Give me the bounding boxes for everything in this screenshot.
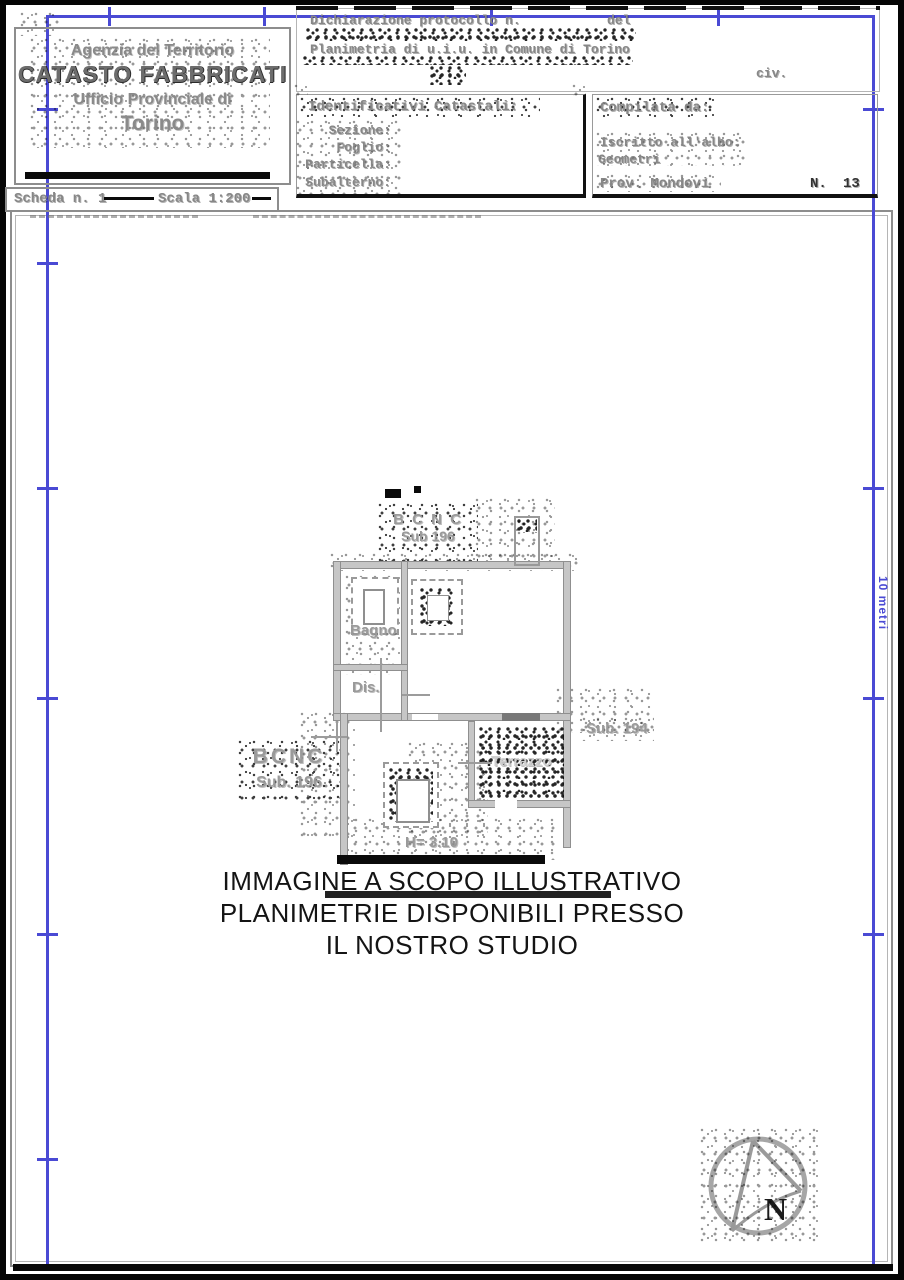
registry-title: CATASTO FABBRICATI [14, 61, 291, 88]
protocol-label: Dichiarazione protocollo n. [310, 13, 521, 28]
bottom-border-bar [13, 1264, 893, 1271]
watermark-line3: IL NOSTRO STUDIO [0, 930, 904, 961]
ruler-tick [863, 697, 884, 700]
compass-north-label: N [764, 1191, 787, 1227]
section-cut-line [337, 855, 545, 864]
albo-number-value: 13 [843, 176, 860, 192]
office-city: Torino [14, 112, 291, 136]
wall [333, 561, 341, 721]
leader-line [380, 658, 382, 732]
label-bcnc-top-line1: B C N C [393, 511, 463, 528]
declaration-box-top-border [296, 6, 880, 10]
label-bcnc-left-line2: Sub. 196 [256, 774, 322, 791]
smudge-line [253, 215, 481, 218]
albo-number-label: N. [810, 176, 827, 192]
noise-mark [414, 486, 421, 493]
prov-value: Prov. Mondovi [600, 176, 709, 192]
label-sub-194: Sub. 194 [586, 720, 648, 737]
office-line: Ufficio Provinciale di [14, 91, 291, 109]
watermark-line1: IMMAGINE A SCOPO ILLUSTRATIVO [0, 866, 904, 897]
header-divider-bar [25, 172, 270, 179]
wall-partition [401, 561, 408, 721]
label-bcnc-top-line2: Sub 196 [401, 528, 455, 544]
field-particella: Particella: [296, 157, 391, 172]
field-sezione: Sezione: [296, 123, 391, 138]
albo-label: Iscritto all'albo: [600, 135, 740, 150]
scala-value: Scala 1:200 [158, 191, 250, 207]
label-bcnc-left-line1: BCNC [253, 745, 326, 768]
ruler-tick [37, 1158, 58, 1161]
watermark-line2: PLANIMETRIE DISPONIBILI PRESSO [0, 898, 904, 929]
scala-rule [252, 197, 271, 200]
label-terrazzo: Terrazzo [491, 753, 552, 770]
protocol-del-label: del [607, 13, 630, 28]
civ-label: civ. [756, 66, 787, 81]
drawing-area-frame-inner [15, 215, 888, 1262]
ruler-scale-label: 10 metri [876, 576, 890, 630]
wall-partition [468, 721, 475, 808]
field-foglio: Foglio: [296, 140, 391, 155]
ruler-tick [37, 262, 58, 265]
wall-opening [495, 800, 517, 808]
north-compass-svg: N [702, 1130, 814, 1242]
fixture-inner [363, 589, 385, 625]
identificativi-title: Identificativi Catastali: [308, 99, 518, 115]
ruler-tick [37, 697, 58, 700]
wall-partition [333, 664, 408, 671]
ruler-line-right [872, 15, 875, 1264]
label-bcnc-top: B C N C Sub 196 [383, 511, 473, 545]
albo-value: Geometri [598, 152, 660, 167]
label-height: H= 3.10 [405, 834, 458, 851]
scheda-number: Scheda n. 1 [14, 191, 106, 207]
smudge-line [30, 215, 198, 218]
wall [468, 800, 571, 808]
planimetria-line: Planimetria di u.i.u. in Comune di Torin… [310, 42, 630, 57]
ruler-tick [263, 7, 266, 26]
field-subalterno: Subalterno: [296, 175, 391, 190]
agency-name: Agenzia del Territorio [14, 42, 291, 60]
leader-line [311, 736, 347, 738]
noise-mark [385, 489, 401, 498]
leader-line [458, 762, 492, 764]
ruler-tick [37, 487, 58, 490]
label-dis: Dis. [352, 679, 380, 696]
leader-line [402, 694, 430, 696]
wall-opening [412, 714, 438, 720]
compilata-title: Compilata da: [600, 100, 709, 116]
label-bcnc-left: BCNC Sub. 196 [240, 745, 338, 793]
door-threshold [502, 713, 540, 721]
ruler-tick [108, 7, 111, 26]
scheda-rule [104, 197, 154, 200]
scanned-cadastral-planimetria: { "header_left": { "agency": "Agenzia de… [0, 0, 904, 1280]
duct [514, 516, 540, 566]
fixture-inner [427, 595, 449, 621]
label-bagno: Bagno [350, 622, 397, 639]
ruler-tick [863, 487, 884, 490]
fixture-inner [396, 779, 430, 823]
north-compass-icon: N [702, 1130, 814, 1242]
